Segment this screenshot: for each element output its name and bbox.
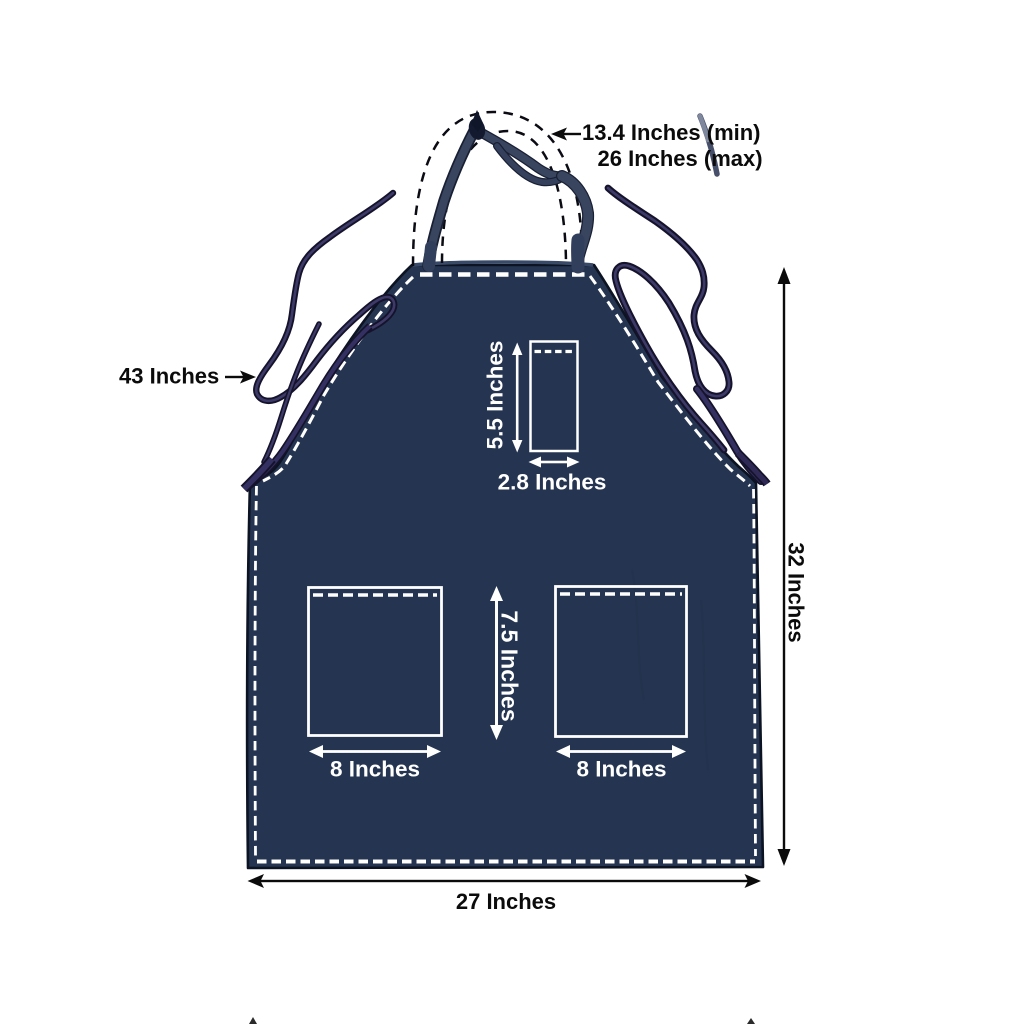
svg-text:13.4 Inches (min): 13.4 Inches (min) — [582, 120, 761, 145]
svg-text:32 Inches: 32 Inches — [784, 542, 809, 642]
svg-text:5.5 Inches: 5.5 Inches — [483, 341, 508, 450]
svg-text:8 Inches: 8 Inches — [576, 757, 666, 782]
svg-text:26 Inches (max): 26 Inches (max) — [598, 146, 763, 171]
svg-text:2.8 Inches: 2.8 Inches — [498, 470, 607, 495]
svg-text:27 Inches: 27 Inches — [456, 889, 556, 914]
svg-text:8 Inches: 8 Inches — [330, 757, 420, 782]
svg-text:43 Inches: 43 Inches — [119, 364, 219, 389]
svg-text:7.5 Inches: 7.5 Inches — [497, 610, 523, 721]
